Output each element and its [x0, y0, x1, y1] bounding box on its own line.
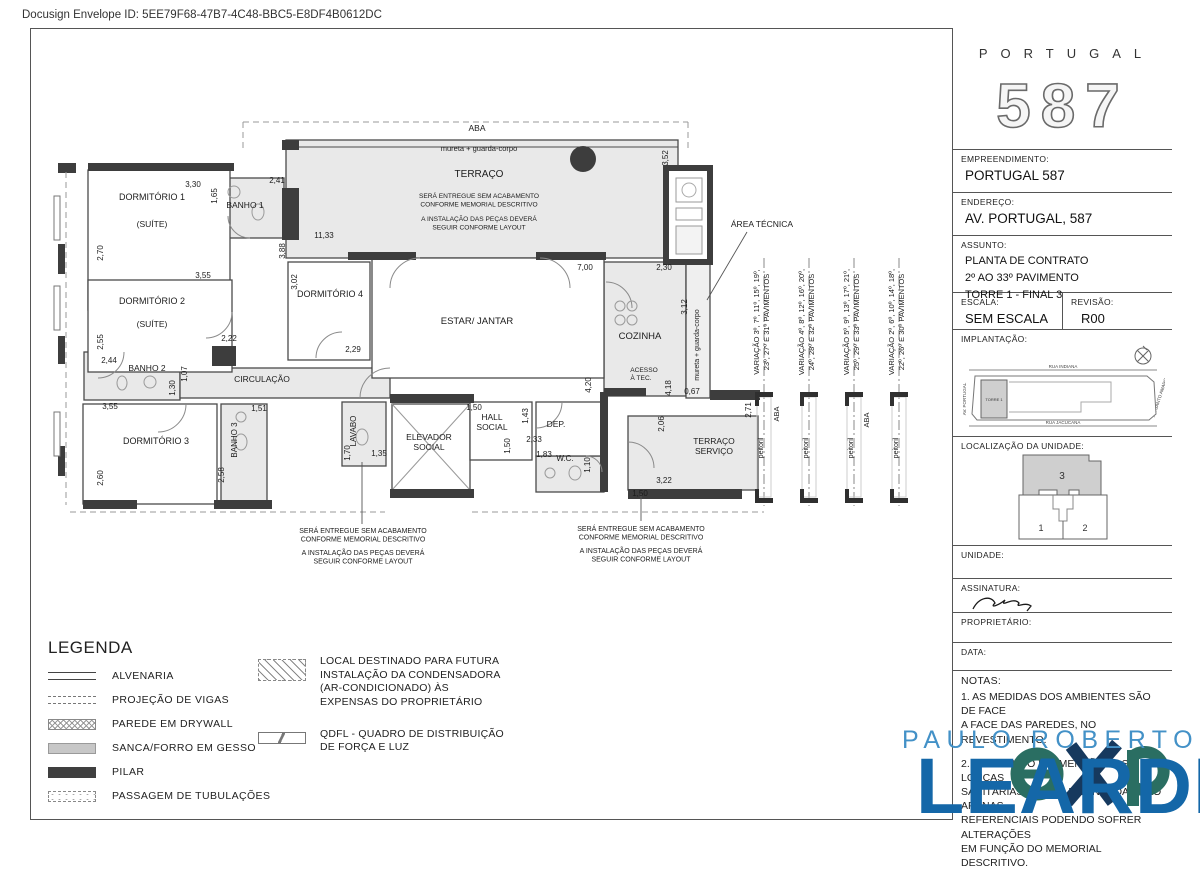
svg-text:ELEVADOR: ELEVADOR	[406, 432, 452, 442]
svg-text:2: 2	[1082, 523, 1087, 533]
legend-right-column: LOCAL DESTINADO PARA FUTURA INSTALAÇÃO D…	[258, 655, 588, 773]
svg-text:1,50: 1,50	[466, 403, 482, 412]
notas-text-1: 1. AS MEDIDAS DOS AMBIENTES SÃO DE FACE …	[961, 690, 1164, 747]
svg-text:mureta + guarda-corpo: mureta + guarda-corpo	[441, 144, 518, 153]
svg-text:BANHO 3: BANHO 3	[230, 422, 239, 458]
svg-text:W.C.: W.C.	[556, 454, 573, 463]
site-plan: RUA INDIANA RUA JACUCANA AV. PORTUGAL AV…	[961, 344, 1165, 432]
svg-text:À TEC.: À TEC.	[630, 373, 651, 382]
svg-text:A INSTALAÇÃO DAS PEÇAS DEVERÁ: A INSTALAÇÃO DAS PEÇAS DEVERÁ	[302, 548, 425, 557]
svg-text:CONFORME MEMORIAL DESCRITIVO: CONFORME MEMORIAL DESCRITIVO	[301, 537, 426, 544]
unit-locator: 3 1 2	[961, 451, 1165, 541]
svg-text:peitoril: peitoril	[848, 437, 855, 458]
tubulacoes-swatch-icon	[48, 791, 96, 802]
field-notas: NOTAS: 1. AS MEDIDAS DOS AMBIENTES SÃO D…	[953, 671, 1172, 820]
svg-text:(SUÍTE): (SUÍTE)	[137, 219, 168, 229]
qdfl-swatch-icon	[258, 732, 306, 744]
svg-text:SOCIAL: SOCIAL	[476, 422, 507, 432]
svg-text:mureta + guarda-corpo: mureta + guarda-corpo	[694, 309, 701, 381]
svg-text:2,30: 2,30	[656, 263, 672, 272]
field-implantacao: IMPLANTAÇÃO: RUA INDIANA RUA JACUCANA AV…	[953, 330, 1172, 437]
svg-text:1,70: 1,70	[343, 445, 352, 461]
svg-text:A INSTALAÇÃO DAS PEÇAS DEVERÁ: A INSTALAÇÃO DAS PEÇAS DEVERÁ	[421, 214, 537, 223]
floor-plan: ABA mureta + guarda-corpo TERRAÇO SERÁ E…	[0, 0, 960, 630]
svg-text:24º, 28º E 32º PAVIMENTOS: 24º, 28º E 32º PAVIMENTOS	[807, 274, 816, 371]
svg-text:3,12: 3,12	[680, 299, 689, 315]
svg-text:CONFORME MEMORIAL DESCRITIVO: CONFORME MEMORIAL DESCRITIVO	[420, 202, 537, 209]
svg-text:4,20: 4,20	[584, 377, 593, 393]
svg-text:ABA: ABA	[772, 406, 781, 421]
svg-text:3,88: 3,88	[278, 243, 287, 259]
svg-text:2,44: 2,44	[101, 356, 117, 365]
pilar-swatch-icon	[48, 767, 96, 778]
svg-text:VARIAÇÃO 5º, 9º, 13º, 17º, 21º: VARIAÇÃO 5º, 9º, 13º, 17º, 21º,	[842, 269, 851, 375]
field-assinatura[interactable]: ASSINATURA:	[953, 579, 1172, 613]
svg-text:2,58: 2,58	[217, 467, 226, 483]
svg-text:ACESSO: ACESSO	[630, 367, 657, 374]
sanca-swatch-icon	[48, 743, 96, 754]
project-logo: PORTUGAL 587	[953, 28, 1172, 150]
svg-text:2,70: 2,70	[96, 245, 105, 261]
field-escala: ESCALA: SEM ESCALA	[953, 293, 1063, 329]
variacao-columns	[755, 258, 908, 506]
field-escala-revisao: ESCALA: SEM ESCALA REVISÃO: R00	[953, 293, 1172, 330]
vigas-swatch-icon	[48, 696, 96, 704]
svg-text:ABA: ABA	[468, 123, 485, 133]
field-unidade[interactable]: UNIDADE:	[953, 546, 1172, 579]
svg-text:SEGUIR CONFORME LAYOUT: SEGUIR CONFORME LAYOUT	[313, 559, 413, 566]
svg-text:2,22: 2,22	[221, 334, 237, 343]
svg-text:2,60: 2,60	[96, 470, 105, 486]
svg-text:VARIAÇÃO 4º, 8º, 12º, 16º, 20º: VARIAÇÃO 4º, 8º, 12º, 16º, 20º,	[797, 269, 806, 375]
svg-text:587: 587	[996, 72, 1129, 141]
svg-text:DORMITÓRIO 2: DORMITÓRIO 2	[119, 296, 185, 306]
svg-text:SOCIAL: SOCIAL	[413, 442, 444, 452]
svg-text:3,30: 3,30	[185, 180, 201, 189]
svg-text:BANHO 1: BANHO 1	[226, 200, 264, 210]
logo-587-icon: 587	[963, 61, 1163, 145]
logo-brand-text: PORTUGAL	[969, 46, 1164, 61]
svg-text:1,30: 1,30	[168, 380, 177, 396]
svg-text:LAVABO: LAVABO	[349, 416, 358, 447]
svg-text:25º, 29º E 33º PAVIMENTOS: 25º, 29º E 33º PAVIMENTOS	[852, 274, 861, 371]
svg-text:peitoril: peitoril	[758, 437, 765, 458]
svg-text:2,06: 2,06	[657, 416, 666, 432]
svg-text:SEGUIR CONFORME LAYOUT: SEGUIR CONFORME LAYOUT	[591, 557, 691, 564]
svg-text:1: 1	[1038, 523, 1043, 533]
svg-text:1,35: 1,35	[371, 449, 387, 458]
svg-text:1,07: 1,07	[180, 366, 189, 382]
legend-item-condensadora: LOCAL DESTINADO PARA FUTURA INSTALAÇÃO D…	[258, 655, 588, 710]
svg-text:22º, 26º E 30º PAVIMENTOS: 22º, 26º E 30º PAVIMENTOS	[897, 274, 906, 371]
svg-text:ÁREA TÉCNICA: ÁREA TÉCNICA	[731, 219, 794, 229]
svg-text:2,71: 2,71	[744, 402, 753, 418]
svg-text:AV. PORTUGAL: AV. PORTUGAL	[962, 382, 967, 415]
svg-text:SERÁ ENTREGUE SEM ACABAMENTO: SERÁ ENTREGUE SEM ACABAMENTO	[577, 524, 705, 533]
svg-text:CONFORME MEMORIAL DESCRITIVO: CONFORME MEMORIAL DESCRITIVO	[579, 535, 704, 542]
field-proprietario[interactable]: PROPRIETÁRIO:	[953, 613, 1172, 643]
svg-text:TERRAÇO: TERRAÇO	[693, 436, 735, 446]
plan-windows	[54, 196, 60, 456]
svg-text:HALL: HALL	[481, 412, 503, 422]
field-data[interactable]: DATA:	[953, 643, 1172, 671]
svg-text:3,02: 3,02	[290, 274, 299, 290]
svg-text:TORRE 1: TORRE 1	[985, 397, 1003, 402]
title-block-sidebar: PORTUGAL 587 EMPREENDIMENTO: PORTUGAL 58…	[952, 28, 1172, 820]
svg-text:DORMITÓRIO 1: DORMITÓRIO 1	[119, 192, 185, 202]
svg-text:CIRCULAÇÃO: CIRCULAÇÃO	[234, 374, 290, 384]
svg-text:3,52: 3,52	[661, 150, 670, 166]
svg-text:3,55: 3,55	[195, 271, 211, 280]
svg-text:ESTAR/ JANTAR: ESTAR/ JANTAR	[441, 316, 514, 327]
signature-icon	[969, 593, 1039, 615]
assunto-line: 2º AO 33º PAVIMENTO	[965, 270, 1164, 287]
svg-text:DEP.: DEP.	[547, 419, 566, 429]
svg-text:SERVIÇO: SERVIÇO	[695, 446, 733, 456]
field-localizacao: LOCALIZAÇÃO DA UNIDADE: 3 1 2	[953, 437, 1172, 546]
svg-text:DORMITÓRIO 3: DORMITÓRIO 3	[123, 436, 189, 446]
svg-text:RUA INDIANA: RUA INDIANA	[1049, 364, 1078, 369]
svg-text:1,83: 1,83	[536, 450, 552, 459]
svg-text:0,67: 0,67	[684, 387, 700, 396]
notas-text-2: 2. O FORMATO E DIMENSÃO DAS LOUÇAS SANIT…	[961, 757, 1164, 870]
field-endereco: ENDEREÇO: AV. PORTUGAL, 587	[953, 193, 1172, 236]
svg-text:2,55: 2,55	[96, 334, 105, 350]
field-empreendimento: EMPREENDIMENTO: PORTUGAL 587	[953, 150, 1172, 193]
svg-text:RUA JACUCANA: RUA JACUCANA	[1046, 420, 1081, 425]
svg-text:BANHO 2: BANHO 2	[128, 363, 166, 373]
svg-text:SERÁ ENTREGUE SEM ACABAMENTO: SERÁ ENTREGUE SEM ACABAMENTO	[299, 526, 427, 535]
svg-text:DORMITÓRIO 4: DORMITÓRIO 4	[297, 289, 363, 299]
svg-text:3,22: 3,22	[656, 476, 672, 485]
legend-item-qdfl: QDFL - QUADRO DE DISTRIBUIÇÃO DE FORÇA E…	[258, 728, 588, 755]
condensadora-swatch-icon	[258, 659, 306, 681]
alvenaria-swatch-icon	[48, 672, 96, 680]
svg-text:peitoril: peitoril	[803, 437, 810, 458]
svg-text:A INSTALAÇÃO DAS PEÇAS DEVERÁ: A INSTALAÇÃO DAS PEÇAS DEVERÁ	[580, 546, 703, 555]
svg-text:1,51: 1,51	[251, 404, 267, 413]
legend-item-tubulacoes: PASSAGEM DE TUBULAÇÕES	[48, 790, 608, 802]
drywall-swatch-icon	[48, 719, 96, 730]
svg-text:peitoril: peitoril	[893, 437, 900, 458]
svg-text:SERÁ ENTREGUE SEM ACABAMENTO: SERÁ ENTREGUE SEM ACABAMENTO	[419, 191, 539, 200]
svg-text:2,41: 2,41	[269, 176, 285, 185]
svg-text:TERRAÇO: TERRAÇO	[455, 169, 504, 180]
svg-text:2,29: 2,29	[345, 345, 361, 354]
svg-text:7,00: 7,00	[577, 263, 593, 272]
assunto-line: PLANTA DE CONTRATO	[965, 253, 1164, 270]
svg-text:3: 3	[1059, 471, 1065, 482]
svg-text:23º, 27º E 31º PAVIMENTOS: 23º, 27º E 31º PAVIMENTOS	[762, 274, 771, 371]
svg-text:1,65: 1,65	[210, 188, 219, 204]
svg-text:1,10: 1,10	[583, 457, 592, 473]
svg-text:1,50: 1,50	[632, 489, 648, 498]
svg-text:VARIAÇÃO 3º, 7º, 11º, 15º, 19º: VARIAÇÃO 3º, 7º, 11º, 15º, 19º,	[752, 269, 761, 375]
svg-text:SEGUIR CONFORME LAYOUT: SEGUIR CONFORME LAYOUT	[432, 225, 525, 232]
svg-text:ABA: ABA	[862, 412, 871, 427]
svg-text:VARIAÇÃO 2º, 6º, 10º, 14º, 18º: VARIAÇÃO 2º, 6º, 10º, 14º, 18º,	[887, 269, 896, 375]
svg-text:(SUÍTE): (SUÍTE)	[137, 319, 168, 329]
svg-text:1,43: 1,43	[521, 408, 530, 424]
field-revisao: REVISÃO: R00	[1063, 293, 1172, 329]
svg-text:1,50: 1,50	[503, 438, 512, 454]
north-compass-icon	[1135, 346, 1151, 364]
svg-text:COZINHA: COZINHA	[619, 331, 662, 342]
variacao-labels: VARIAÇÃO 3º, 7º, 11º, 15º, 19º, 23º, 27º…	[752, 269, 906, 458]
svg-text:4,18: 4,18	[664, 380, 673, 396]
plan-bottom-notes: SERÁ ENTREGUE SEM ACABAMENTO CONFORME ME…	[299, 524, 705, 566]
svg-text:11,33: 11,33	[314, 231, 334, 240]
field-assunto: ASSUNTO: PLANTA DE CONTRATO 2º AO 33º PA…	[953, 236, 1172, 293]
svg-text:3,55: 3,55	[102, 402, 118, 411]
svg-text:2,33: 2,33	[526, 435, 542, 444]
